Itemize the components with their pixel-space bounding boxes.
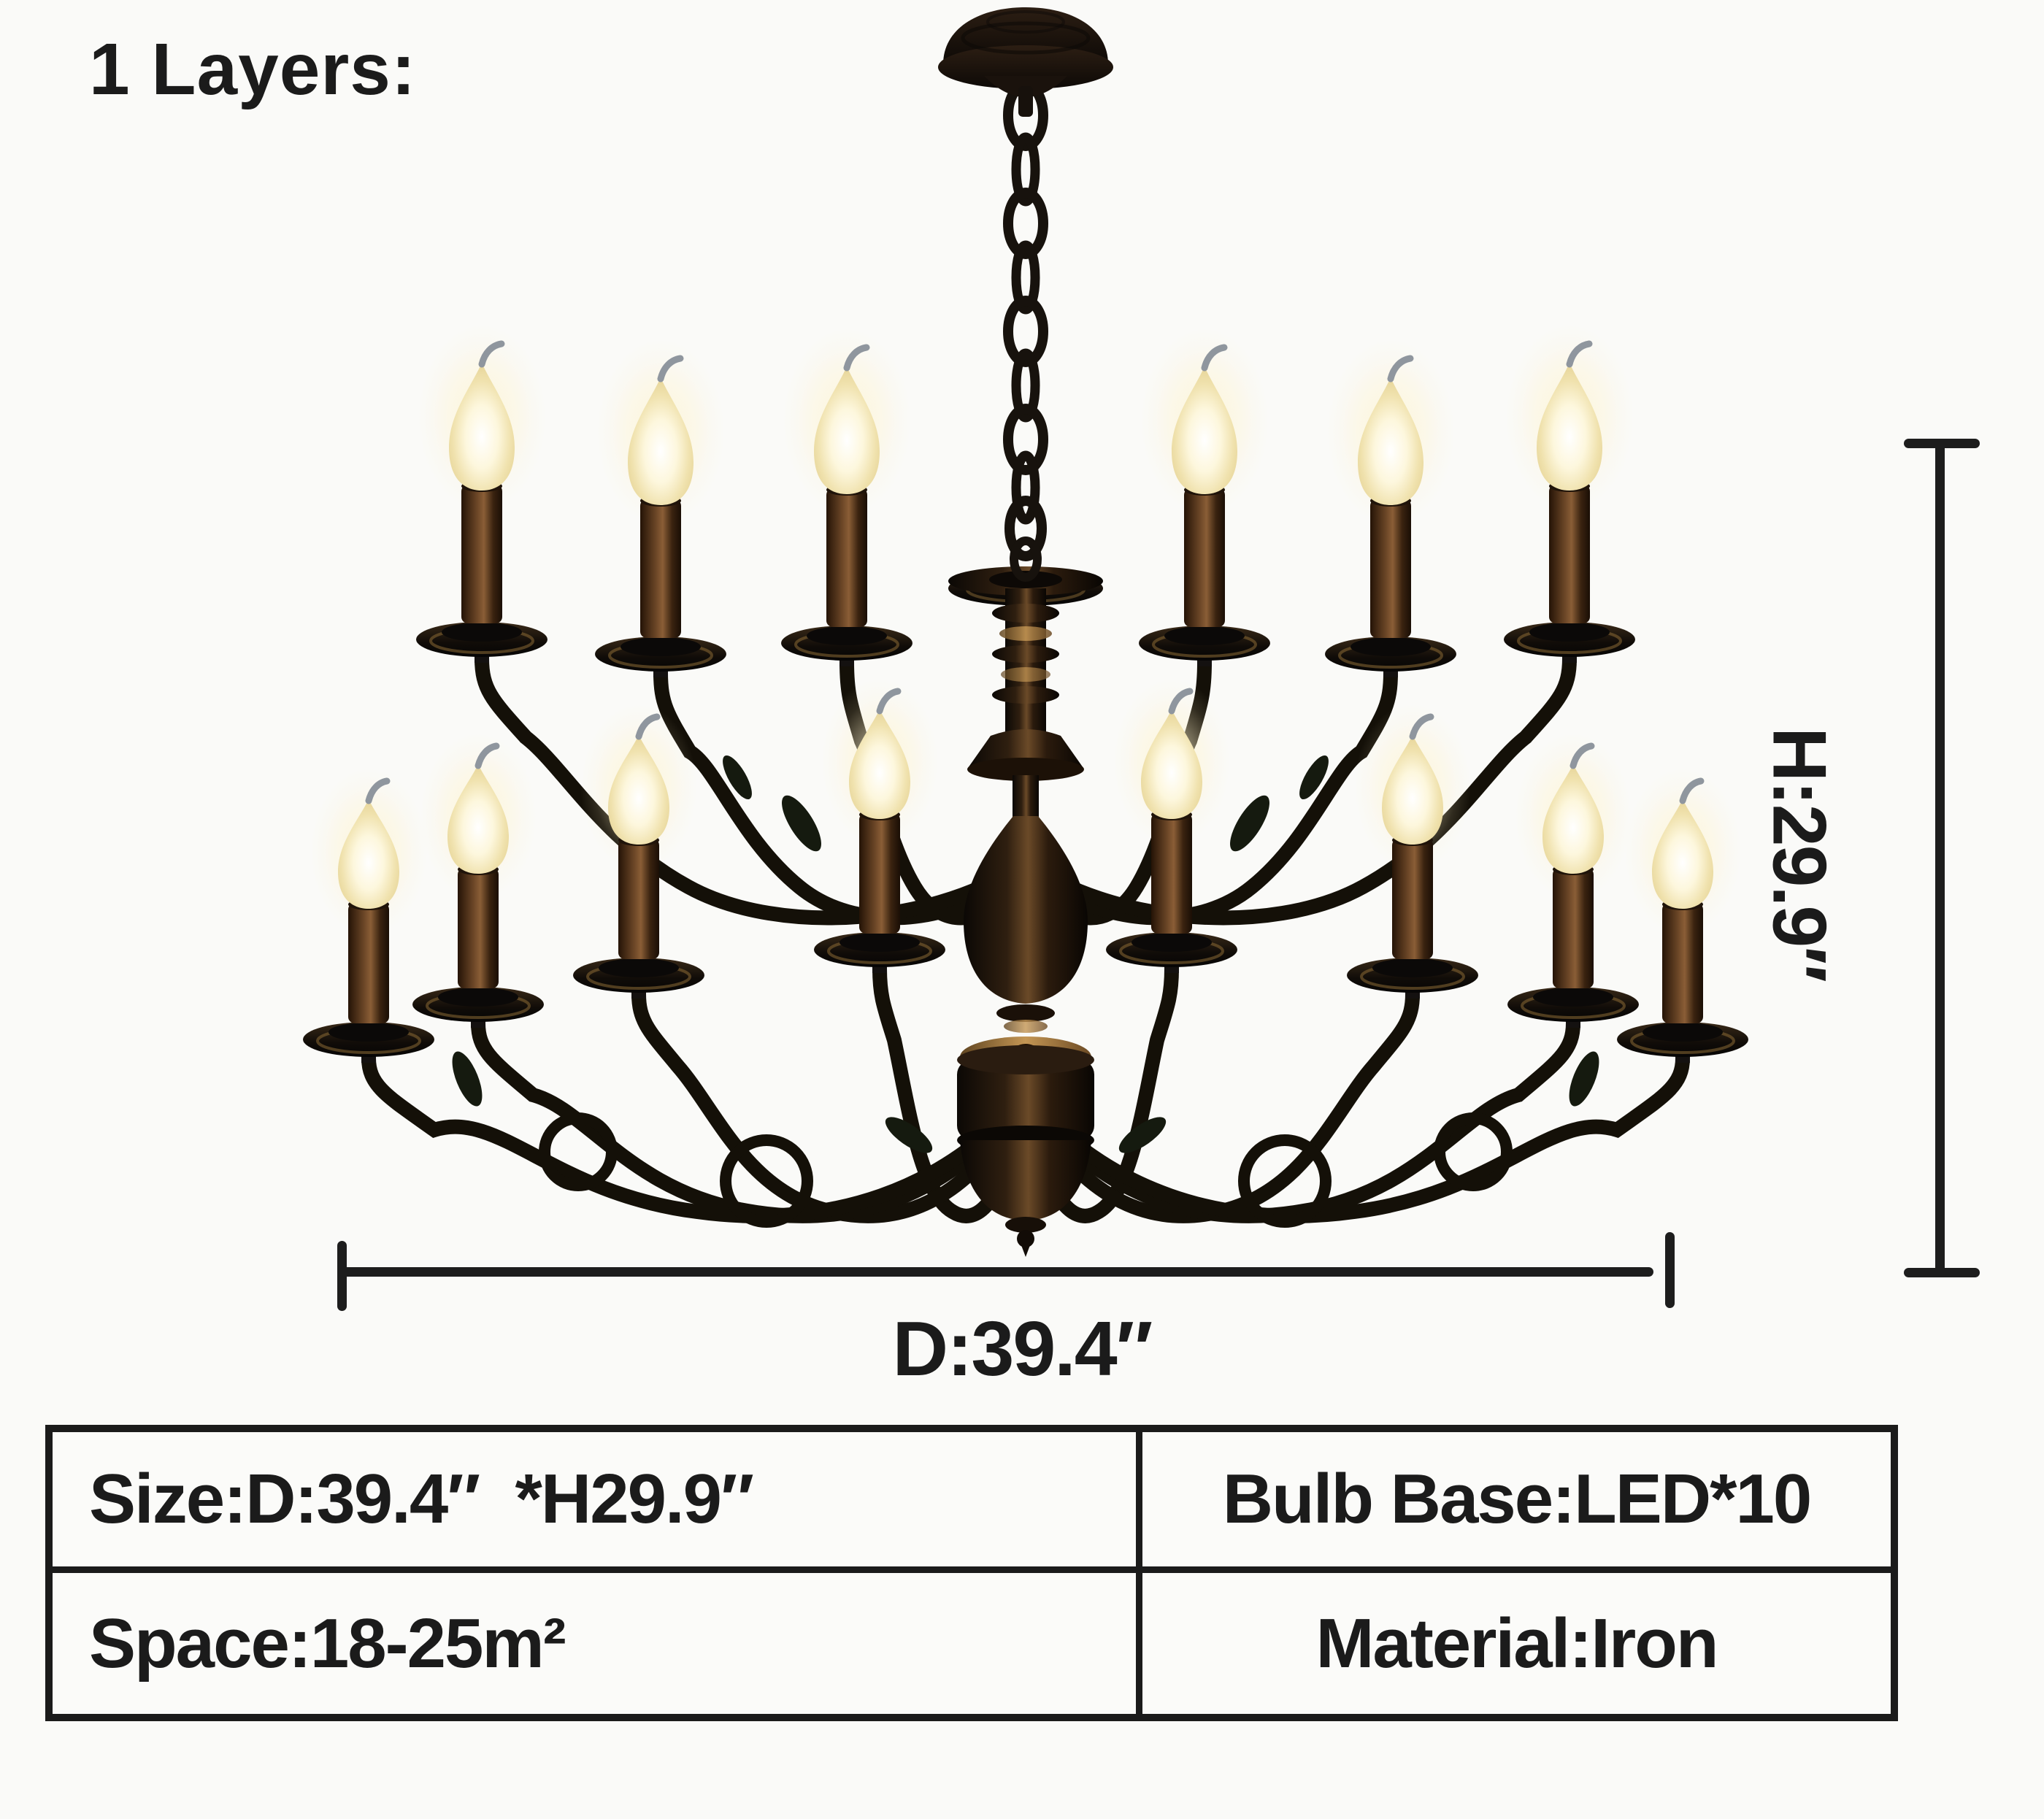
candle xyxy=(416,324,547,663)
height-label: H:29.9″ xyxy=(1756,727,1843,981)
candle xyxy=(573,704,704,999)
candle xyxy=(595,339,726,677)
candle xyxy=(781,328,912,666)
diameter-label: D:39.4″ xyxy=(893,1305,1152,1393)
candle xyxy=(1325,339,1456,677)
chandelier-column xyxy=(948,566,1103,1257)
candle xyxy=(1617,768,1748,1063)
ceiling-canopy xyxy=(938,7,1113,117)
candle xyxy=(1347,704,1478,999)
candle xyxy=(814,678,945,973)
spec-bulb-base-cell: Bulb Base:LED*10 xyxy=(1142,1432,1891,1573)
diameter-dimension-right-tick xyxy=(1665,1232,1675,1308)
spec-material-cell: Material:Iron xyxy=(1142,1573,1891,1714)
candle xyxy=(412,733,544,1028)
candle xyxy=(1507,733,1639,1028)
height-dimension-line xyxy=(1935,443,1945,1272)
diameter-dimension-line xyxy=(342,1267,1653,1277)
hanging-chain xyxy=(1008,85,1043,577)
candle xyxy=(303,768,434,1063)
height-dimension-bottom-cap xyxy=(1904,1268,1980,1277)
diameter-dimension-left-tick xyxy=(337,1241,347,1311)
spec-space-cell: Space:18-25m² xyxy=(53,1573,1142,1714)
candle xyxy=(1106,678,1237,973)
spec-table: Size:D:39.4″ *H29.9″ Bulb Base:LED*10 Sp… xyxy=(45,1425,1898,1721)
spec-size-cell: Size:D:39.4″ *H29.9″ xyxy=(53,1432,1142,1573)
candle xyxy=(1139,328,1270,666)
layers-title: 1 Layers: xyxy=(89,28,416,112)
candle xyxy=(1504,324,1635,663)
height-dimension-top-cap xyxy=(1904,439,1980,448)
